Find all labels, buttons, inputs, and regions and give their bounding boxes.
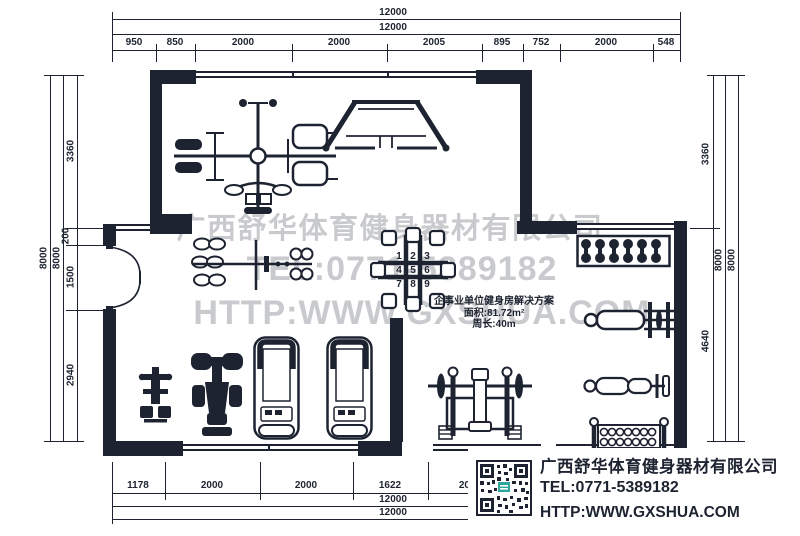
dimension-tick bbox=[195, 44, 196, 62]
station-number: 3 bbox=[420, 249, 434, 263]
equipment-multi-station-machine bbox=[170, 95, 340, 215]
station-number: 4 bbox=[392, 263, 406, 277]
dim-label: 2940 bbox=[66, 364, 77, 386]
dim-label: 12000 bbox=[379, 507, 407, 518]
double-door bbox=[100, 240, 145, 315]
dimension-tick bbox=[292, 44, 293, 62]
info-company-name: 广西舒华体育健身器材有限公司 bbox=[540, 453, 778, 477]
dimension-tick bbox=[690, 228, 720, 229]
dimension-tick bbox=[428, 462, 429, 500]
wall bbox=[150, 214, 192, 234]
dimension-tick bbox=[680, 12, 681, 62]
station-number: 6 bbox=[420, 263, 434, 277]
station-number: 7 bbox=[392, 277, 406, 291]
dim-label: 200 bbox=[61, 228, 72, 245]
dim-label: 2000 bbox=[201, 480, 223, 491]
dimension-tick bbox=[112, 462, 113, 524]
qr-code bbox=[476, 460, 532, 521]
dim-label: 8000 bbox=[52, 247, 63, 269]
dimension-tick bbox=[44, 75, 84, 76]
equipment-trapezoid-rack bbox=[316, 95, 456, 155]
dim-label: 752 bbox=[533, 37, 550, 48]
dimension-tick bbox=[482, 44, 483, 62]
company-info-box: 广西舒华体育健身器材有限公司 TEL:0771-5389182 HTTP:WWW… bbox=[468, 448, 800, 536]
window-mullion bbox=[268, 444, 270, 451]
dim-label: 12000 bbox=[379, 7, 407, 18]
dimension-line bbox=[77, 75, 78, 441]
station-number: 2 bbox=[406, 249, 420, 263]
interior-partition-wall bbox=[390, 318, 403, 442]
dimension-tick bbox=[653, 44, 654, 62]
dimension-tick bbox=[66, 310, 104, 311]
dim-label: 950 bbox=[126, 37, 143, 48]
equipment-adjustable-bench bbox=[582, 369, 672, 403]
dim-label: 850 bbox=[167, 37, 184, 48]
dim-label: 3360 bbox=[701, 143, 712, 165]
dimension-tick bbox=[387, 44, 388, 62]
station-number-grid: 1 2 3 4 5 6 7 8 9 bbox=[392, 249, 434, 291]
dimension-tick bbox=[707, 75, 745, 76]
equipment-treadmill bbox=[252, 335, 301, 441]
dim-label: 2000 bbox=[595, 37, 617, 48]
dimension-tick bbox=[112, 12, 113, 62]
dimension-tick bbox=[260, 462, 261, 500]
equipment-bench-press bbox=[426, 364, 534, 444]
dimension-tick bbox=[560, 44, 561, 62]
dimension-tick bbox=[165, 462, 166, 500]
station-number: 8 bbox=[406, 277, 420, 291]
dimension-line bbox=[112, 50, 680, 51]
dimension-tick bbox=[523, 44, 524, 62]
wall bbox=[517, 221, 577, 234]
wall bbox=[103, 309, 116, 456]
window bbox=[183, 444, 358, 451]
dim-label: 12000 bbox=[379, 22, 407, 33]
dim-label: 1500 bbox=[66, 266, 77, 288]
dim-label: 2005 bbox=[423, 37, 445, 48]
solution-title: 企事业单位健身房解决方案 bbox=[430, 296, 558, 308]
station-number: 1 bbox=[392, 249, 406, 263]
dim-label: 895 bbox=[494, 37, 511, 48]
equipment-dumbbell-rack bbox=[576, 231, 671, 271]
dim-label: 8000 bbox=[727, 249, 738, 271]
station-number: 9 bbox=[420, 277, 434, 291]
dim-label: 8000 bbox=[714, 249, 725, 271]
dim-label: 12000 bbox=[379, 494, 407, 505]
dim-label: 4640 bbox=[701, 330, 712, 352]
dim-label: 2000 bbox=[328, 37, 350, 48]
dim-label: 548 bbox=[658, 37, 675, 48]
equipment-dumbbell-barbell-set bbox=[190, 233, 325, 295]
window bbox=[196, 71, 476, 78]
dim-label: 2000 bbox=[232, 37, 254, 48]
equipment-plate-rack bbox=[588, 416, 670, 452]
wall bbox=[150, 70, 162, 230]
wall bbox=[103, 441, 183, 456]
dimension-tick bbox=[156, 44, 157, 62]
solution-area: 面积:81.72m² bbox=[430, 308, 558, 320]
dim-label: 1178 bbox=[127, 480, 149, 491]
window bbox=[116, 224, 150, 231]
dimension-line bbox=[63, 75, 64, 441]
dimension-line bbox=[112, 34, 680, 35]
wall bbox=[520, 70, 532, 228]
dimension-tick bbox=[707, 441, 745, 442]
equipment-stepper bbox=[136, 365, 176, 423]
info-website: HTTP:WWW.GXSHUA.COM bbox=[540, 504, 740, 522]
dimension-tick bbox=[66, 228, 104, 229]
equipment-treadmill bbox=[325, 335, 374, 441]
station-number: 5 bbox=[406, 263, 420, 277]
dimension-tick bbox=[66, 245, 104, 246]
window-mullion bbox=[387, 71, 389, 78]
floor-plan-canvas: 广西舒华体育健身器材有限公司 TEL:0771-5389182 HTTP:WWW… bbox=[0, 0, 800, 536]
dimension-line bbox=[738, 75, 739, 441]
window bbox=[577, 223, 674, 230]
info-telephone: TEL:0771-5389182 bbox=[540, 479, 679, 497]
solution-info-box: 企事业单位健身房解决方案 面积:81.72m² 周长:40m bbox=[430, 296, 558, 331]
window-mullion bbox=[292, 71, 294, 78]
wall bbox=[358, 441, 402, 456]
equipment-spin-bike bbox=[190, 349, 244, 443]
dimension-line bbox=[112, 19, 680, 20]
solution-perimeter: 周长:40m bbox=[430, 319, 558, 331]
dim-label: 8000 bbox=[39, 247, 50, 269]
dimension-tick bbox=[353, 462, 354, 500]
dim-label: 2000 bbox=[295, 480, 317, 491]
equipment-bench-with-rack bbox=[582, 299, 677, 341]
dimension-tick bbox=[44, 441, 84, 442]
dim-label: 1622 bbox=[379, 480, 401, 491]
dim-label: 3360 bbox=[66, 140, 77, 162]
